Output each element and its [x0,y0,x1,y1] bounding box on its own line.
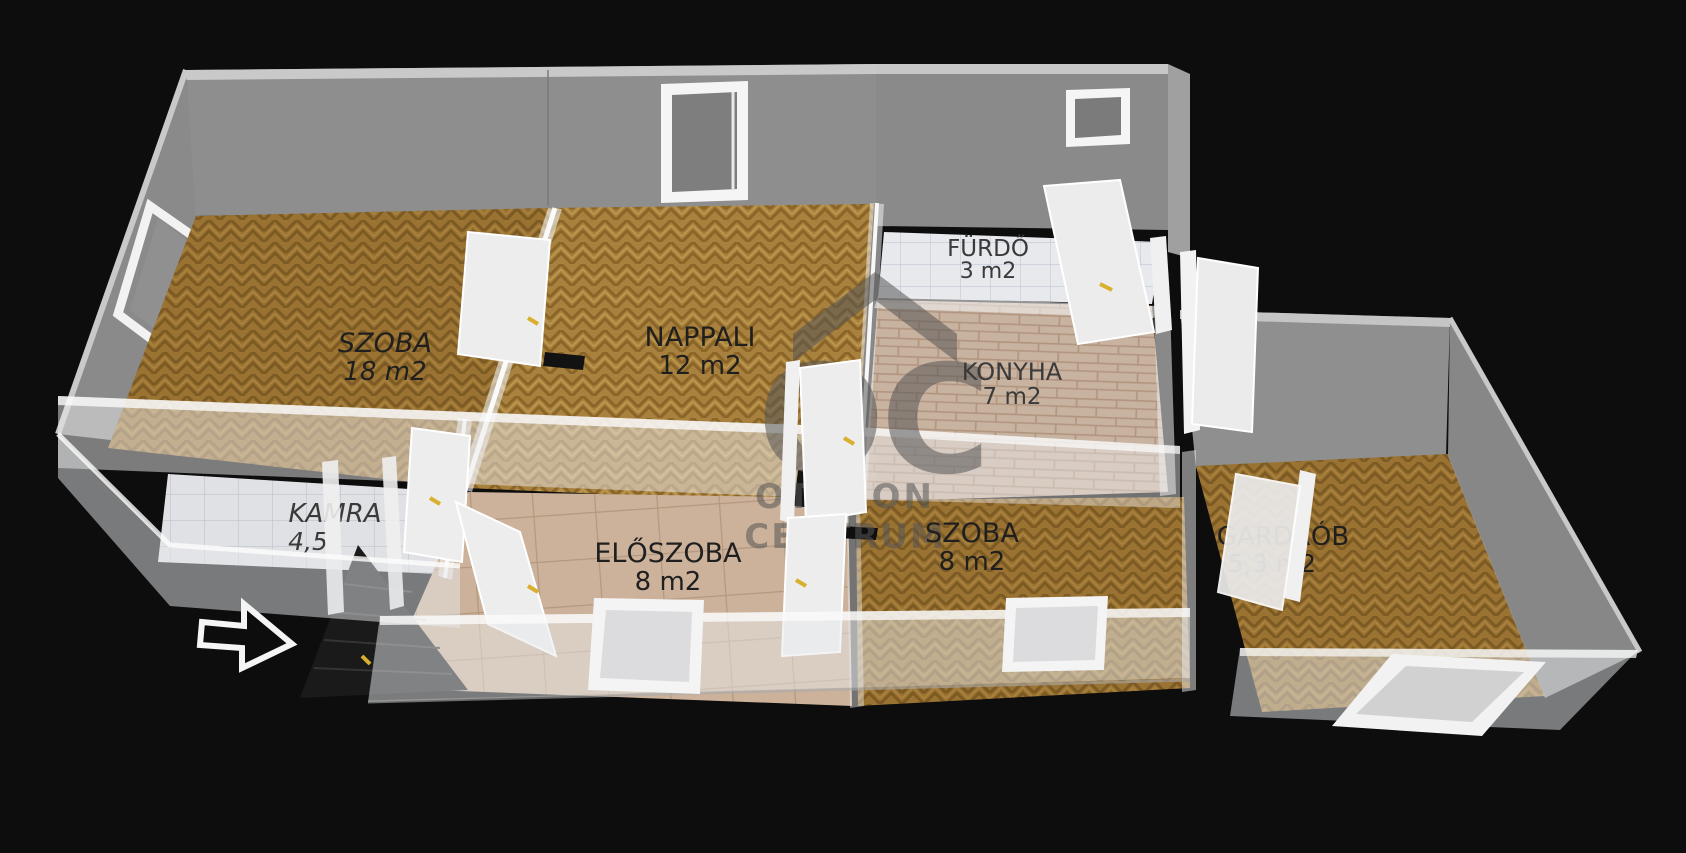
room-name-nappali: NAPPALI [645,322,756,353]
back-wall-left [186,64,876,216]
room-area-szoba8: 8 m2 [939,547,1006,577]
room-area-eloszoba: 8 m2 [635,567,702,597]
room-area-konyha: 7 m2 [983,384,1042,410]
room-area-szoba18: 18 m2 [343,357,426,387]
door-szoba-nappali [458,232,550,366]
szoba8-front-window [1002,596,1108,672]
door-nappali-hall [780,360,866,524]
door-kitchen-wardrobe [1180,250,1258,434]
room-name-szoba18: SZOBA [338,328,432,359]
floorplan-scene: OC OTTHON CENTRUM SZOBA 18 m2 NAPPALI 12… [0,0,1686,853]
back-window-nappali [661,81,748,203]
bathroom-window [1066,88,1130,147]
room-name-konyha: KONYHA [962,358,1063,386]
hall-front-window [588,598,704,694]
room-name-furdo: FÜRDŐ [947,234,1029,262]
room-area-furdo: 3 m2 [960,259,1016,284]
door-wardrobe [1218,470,1316,610]
door-pantry [404,428,470,562]
floorplan-3d-render: OC OTTHON CENTRUM SZOBA 18 m2 NAPPALI 12… [0,0,1686,853]
room-area-nappali: 12 m2 [658,351,741,381]
room-name-eloszoba: ELŐSZOBA [594,537,742,569]
room-name-szoba8: SZOBA [925,518,1019,549]
back-wall-bathroom [876,64,1190,258]
